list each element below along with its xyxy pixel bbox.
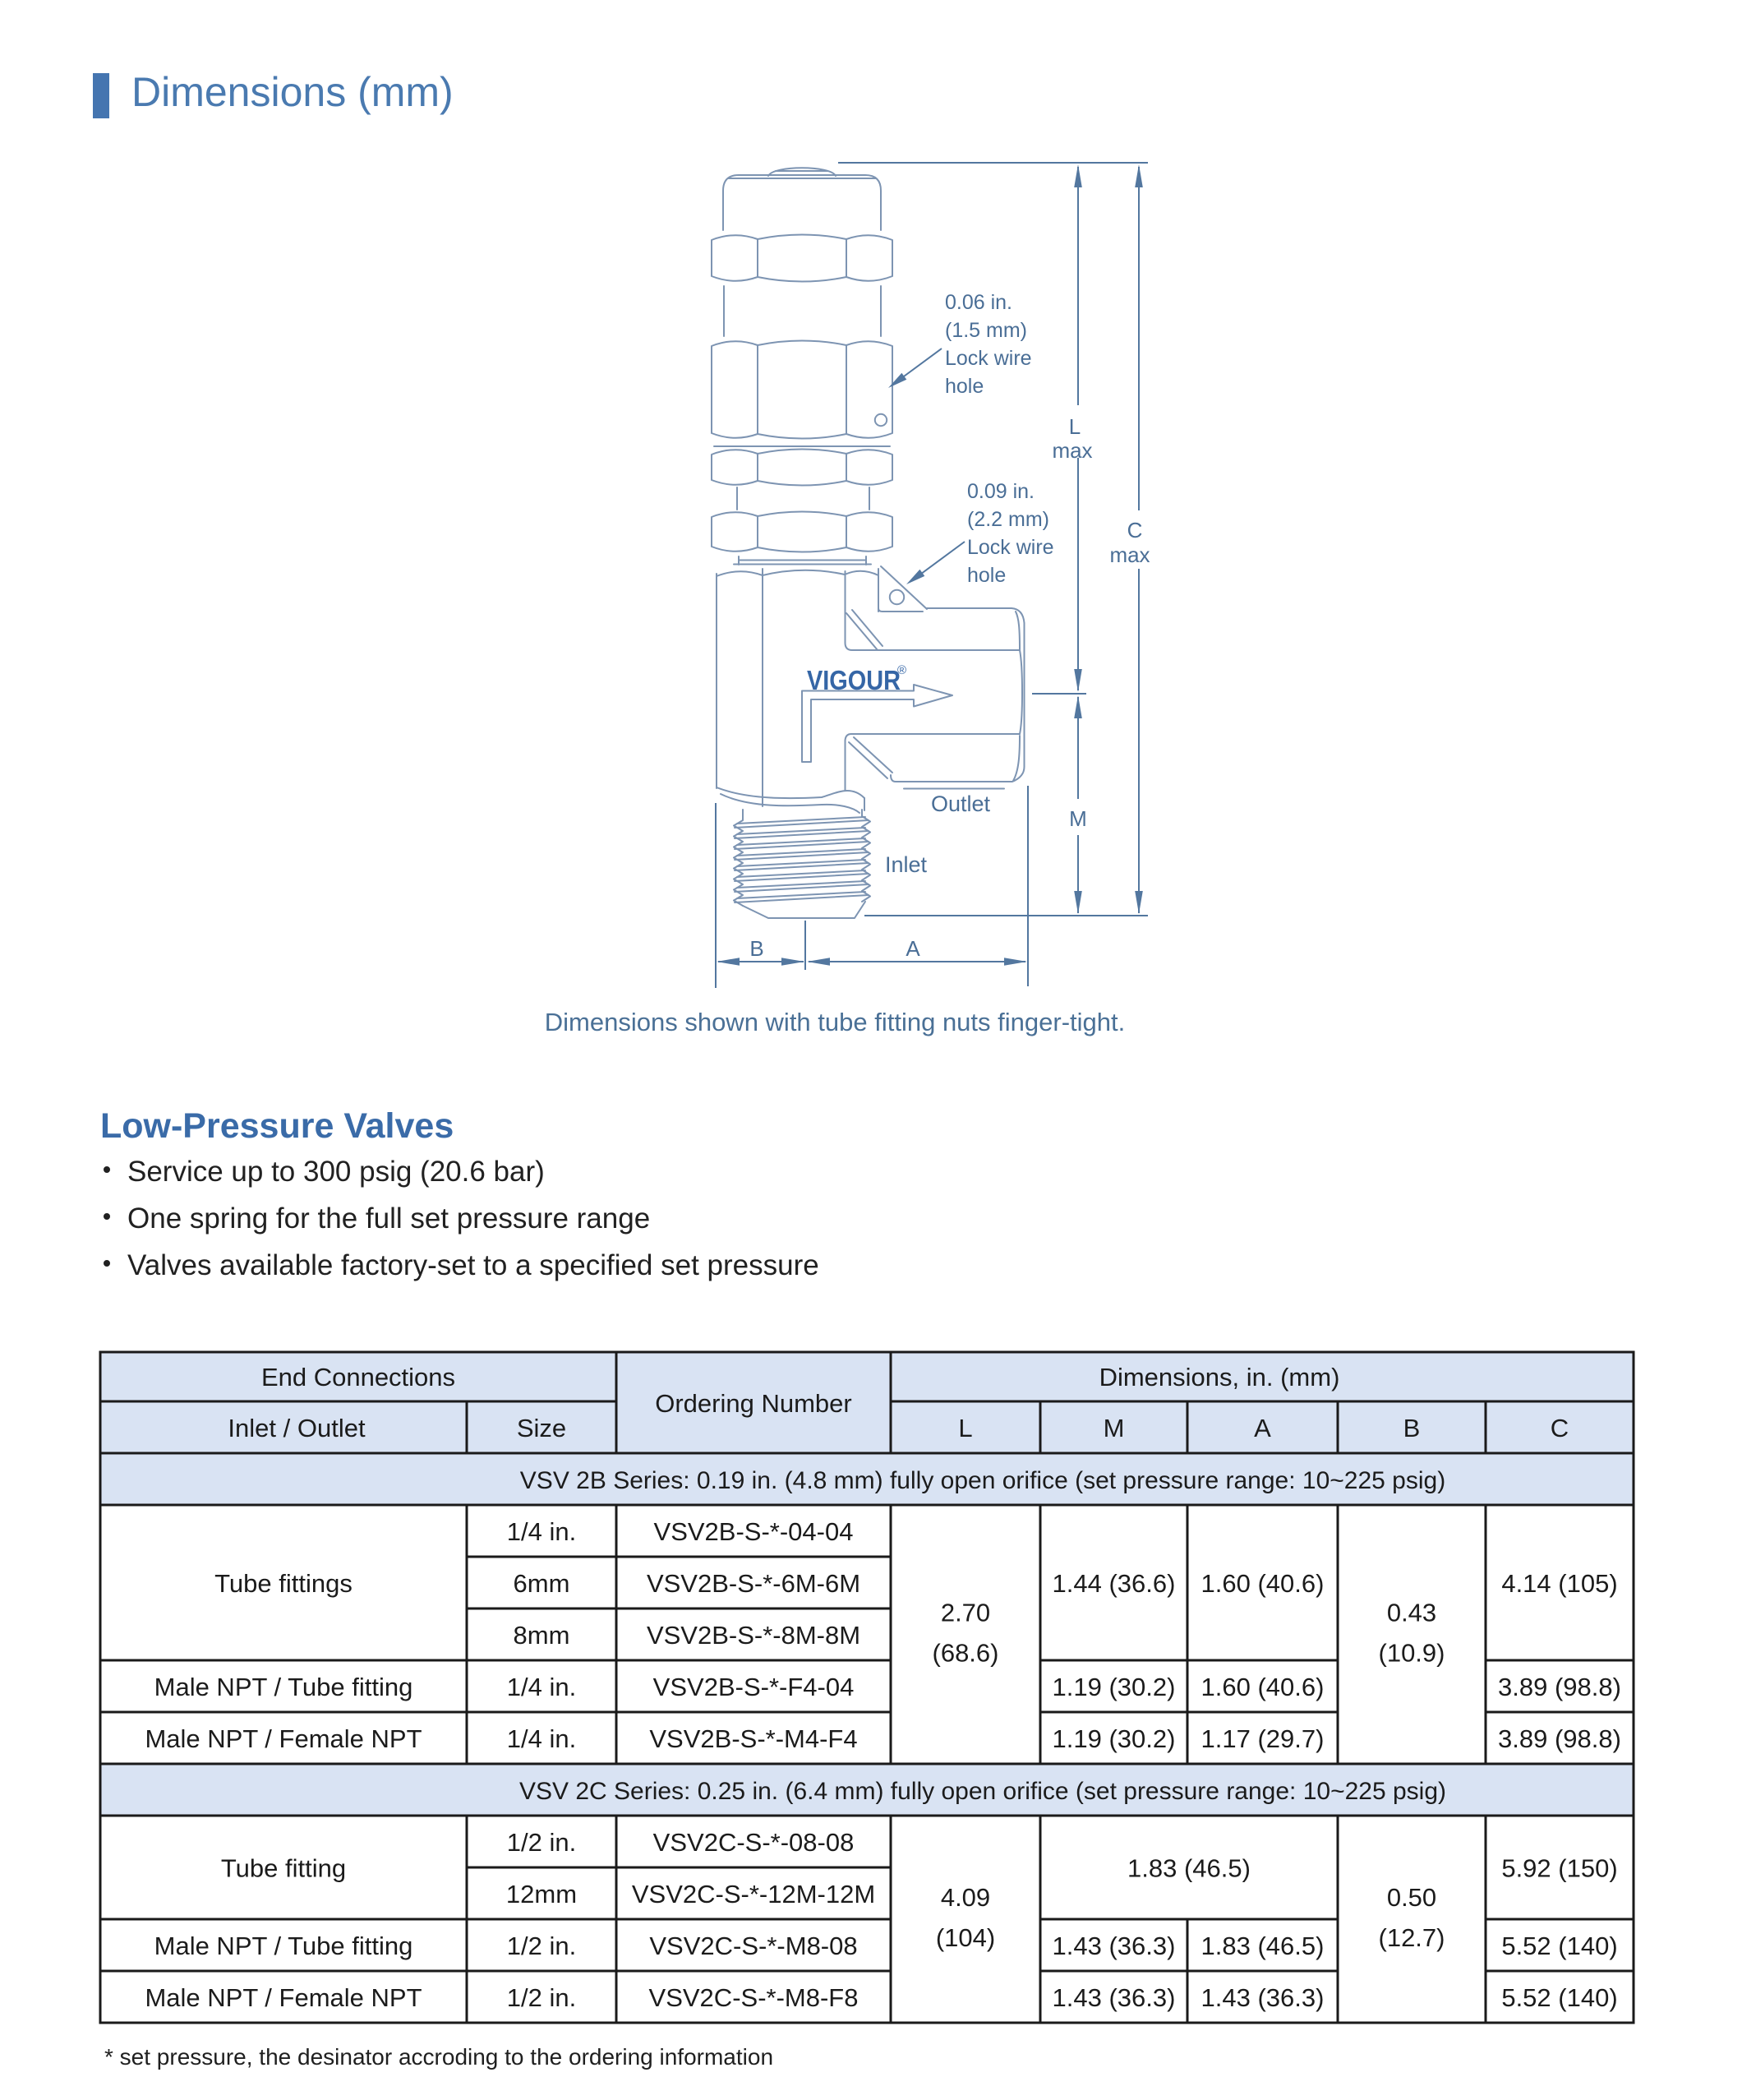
svg-text:1/2 in.: 1/2 in. [507,1932,576,1960]
svg-text:Inlet: Inlet [885,852,928,877]
svg-text:Lock wire: Lock wire [945,347,1032,370]
svg-text:max: max [1109,542,1150,567]
svg-text:A: A [906,936,920,961]
svg-text:1.43 (36.3): 1.43 (36.3) [1201,1983,1325,2012]
svg-text:Ordering Number: Ordering Number [655,1389,851,1418]
svg-text:0.50: 0.50 [1387,1883,1436,1912]
svg-text:VSV2C-S-*-12M-12M: VSV2C-S-*-12M-12M [632,1880,875,1908]
svg-text:B: B [749,936,763,961]
svg-text:VSV 2B Series: 0.19 in. (4.8 m: VSV 2B Series: 0.19 in. (4.8 mm) fully o… [520,1467,1445,1494]
svg-text:Male NPT / Tube fitting: Male NPT / Tube fitting [154,1932,413,1960]
svg-text:Male NPT / Tube fitting: Male NPT / Tube fitting [154,1673,413,1701]
svg-text:(2.2 mm): (2.2 mm) [967,508,1049,531]
svg-text:hole: hole [967,564,1006,587]
svg-text:Dimensions shown with tube fit: Dimensions shown with tube fitting nuts … [545,1008,1125,1036]
svg-text:2.70: 2.70 [941,1599,990,1627]
svg-text:1.83 (46.5): 1.83 (46.5) [1201,1932,1325,1960]
svg-text:L: L [958,1414,972,1442]
svg-text:4.09: 4.09 [941,1883,990,1912]
svg-text:®: ® [897,663,906,677]
svg-text:(68.6): (68.6) [933,1639,999,1668]
svg-text:VSV2B-S-*-M4-F4: VSV2B-S-*-M4-F4 [649,1724,857,1753]
svg-text:VSV2B-S-*-8M-8M: VSV2B-S-*-8M-8M [647,1621,860,1650]
svg-text:0.09 in.: 0.09 in. [967,480,1035,503]
svg-text:1.83 (46.5): 1.83 (46.5) [1127,1854,1251,1883]
svg-text:1.44 (36.6): 1.44 (36.6) [1053,1569,1176,1598]
svg-text:L: L [1069,414,1081,439]
svg-text:8mm: 8mm [514,1621,570,1650]
svg-text:Size: Size [517,1414,566,1442]
svg-text:1/4 in.: 1/4 in. [507,1673,576,1701]
svg-text:5.52 (140): 5.52 (140) [1501,1932,1617,1960]
svg-text:Male NPT / Female NPT: Male NPT / Female NPT [145,1724,422,1753]
svg-text:Outlet: Outlet [931,792,991,816]
svg-text:VSV2C-S-*-M8-08: VSV2C-S-*-M8-08 [649,1932,857,1960]
svg-text:Tube fitting: Tube fitting [221,1854,346,1883]
svg-text:1.60 (40.6): 1.60 (40.6) [1201,1569,1325,1598]
svg-text:VSV2B-S-*-F4-04: VSV2B-S-*-F4-04 [653,1673,855,1701]
svg-text:VSV2B-S-*-6M-6M: VSV2B-S-*-6M-6M [647,1569,860,1598]
svg-text:A: A [1254,1414,1271,1442]
svg-text:1.17 (29.7): 1.17 (29.7) [1201,1724,1325,1753]
svg-text:4.14 (105): 4.14 (105) [1501,1569,1617,1598]
svg-text:VIGOUR: VIGOUR [807,665,901,695]
svg-text:5.92 (150): 5.92 (150) [1501,1854,1617,1883]
svg-text:0.43: 0.43 [1387,1599,1436,1627]
svg-text:End Connections: End Connections [261,1363,455,1392]
svg-text:1.43 (36.3): 1.43 (36.3) [1053,1932,1176,1960]
svg-text:12mm: 12mm [506,1880,577,1908]
svg-text:Service up to 300 psig (20.6 b: Service up to 300 psig (20.6 bar) [127,1156,545,1188]
svg-text:VSV2B-S-*-04-04: VSV2B-S-*-04-04 [654,1517,854,1546]
svg-text:(10.9): (10.9) [1379,1639,1445,1668]
svg-text:6mm: 6mm [514,1569,570,1598]
svg-text:M: M [1104,1414,1125,1442]
svg-text:3.89 (98.8): 3.89 (98.8) [1498,1673,1621,1701]
svg-text:1.19 (30.2): 1.19 (30.2) [1053,1724,1176,1753]
svg-text:B: B [1403,1414,1421,1442]
svg-text:C: C [1127,518,1143,542]
svg-text:Lock wire: Lock wire [967,536,1054,559]
svg-text:1/4 in.: 1/4 in. [507,1724,576,1753]
svg-text:(12.7): (12.7) [1379,1923,1445,1952]
svg-text:hole: hole [945,375,984,398]
svg-text:(1.5 mm): (1.5 mm) [945,319,1027,342]
svg-text:Dimensions (mm): Dimensions (mm) [131,69,454,115]
svg-text:1.60 (40.6): 1.60 (40.6) [1201,1673,1325,1701]
svg-text:VSV2C-S-*-M8-F8: VSV2C-S-*-M8-F8 [649,1983,859,2012]
svg-text:max: max [1052,438,1092,463]
svg-text:Low-Pressure Valves: Low-Pressure Valves [100,1106,454,1146]
svg-text:5.52 (140): 5.52 (140) [1501,1983,1617,2012]
svg-text:Dimensions, in. (mm): Dimensions, in. (mm) [1099,1363,1340,1392]
svg-text:C: C [1551,1414,1569,1442]
svg-text:Male NPT / Female NPT: Male NPT / Female NPT [145,1983,422,2012]
svg-text:Valves available factory-set t: Valves available factory-set to a specif… [127,1249,819,1281]
svg-text:1/2 in.: 1/2 in. [507,1983,576,2012]
svg-text:1.19 (30.2): 1.19 (30.2) [1053,1673,1176,1701]
svg-text:1/2 in.: 1/2 in. [507,1828,576,1857]
svg-text:(104): (104) [936,1923,995,1952]
svg-text:0.06 in.: 0.06 in. [945,291,1012,314]
svg-text:Inlet / Outlet: Inlet / Outlet [228,1414,366,1442]
svg-text:3.89 (98.8): 3.89 (98.8) [1498,1724,1621,1753]
svg-text:VSV2C-S-*-08-08: VSV2C-S-*-08-08 [653,1828,855,1857]
svg-text:1/4 in.: 1/4 in. [507,1517,576,1546]
svg-text:VSV 2C Series: 0.25 in. (6.4 m: VSV 2C Series: 0.25 in. (6.4 mm) fully o… [519,1778,1446,1805]
svg-text:Tube fittings: Tube fittings [214,1569,353,1598]
svg-text:* set pressure, the desinator: * set pressure, the desinator accroding … [104,2044,773,2070]
svg-text:1.43 (36.3): 1.43 (36.3) [1053,1983,1176,2012]
svg-text:One spring for the full set pr: One spring for the full set pressure ran… [127,1202,650,1235]
svg-text:M: M [1069,806,1087,831]
